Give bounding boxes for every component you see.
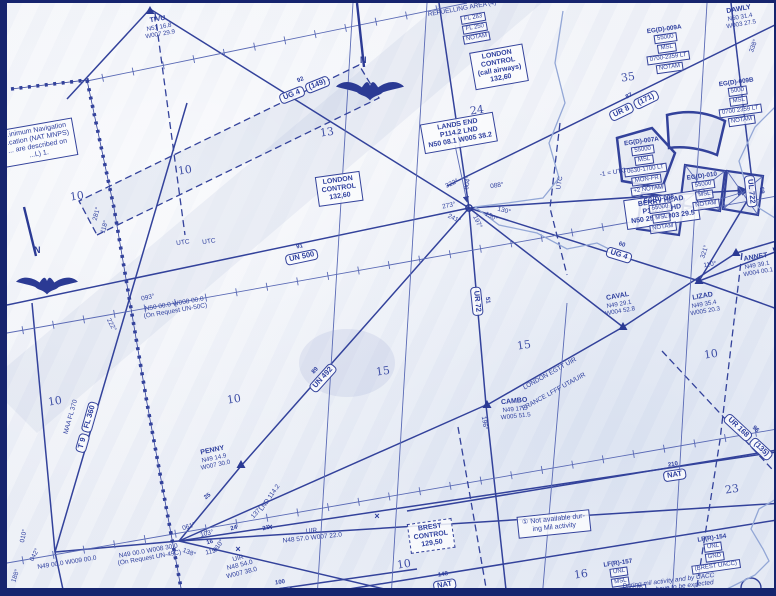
vor-station-dot [468,207,470,209]
scanned-aeronautical-chart: NN TIVUN51 16.8W007 29.9PENNYN49 14.9W00… [0,0,776,596]
waypoint-triangle [237,460,246,468]
solid-line [447,21,774,186]
north-label: N [360,55,367,65]
island-outline [741,578,761,588]
solid-line [469,208,623,327]
solid-line [407,449,774,511]
coast-line [475,11,621,255]
area-outline [617,128,675,188]
solid-line [55,552,65,588]
north-label: N [34,245,41,255]
waypoint-triangle [619,322,628,330]
solid-line [179,541,427,588]
compass-rose: N [16,207,78,294]
thin-line [542,303,567,588]
solid-line [487,239,774,405]
solid-line [469,208,507,588]
area-outline [667,112,725,155]
waypoint-triangle [146,6,155,14]
coast-line [713,495,774,588]
dashed-line [695,253,742,588]
thin-line [7,428,774,563]
chart-paper: NN TIVUN51 16.8W007 29.9PENNYN49 14.9W00… [7,3,774,588]
solid-line [55,541,179,552]
solid-line [67,9,150,99]
area-outline [299,329,395,397]
solid-line [731,3,753,189]
thin-line [672,3,707,588]
solid-line [179,405,486,541]
dashed-line [458,427,488,588]
chart-canvas: NN [7,3,774,588]
dashed-line [662,351,774,481]
dashed-line [550,123,567,275]
